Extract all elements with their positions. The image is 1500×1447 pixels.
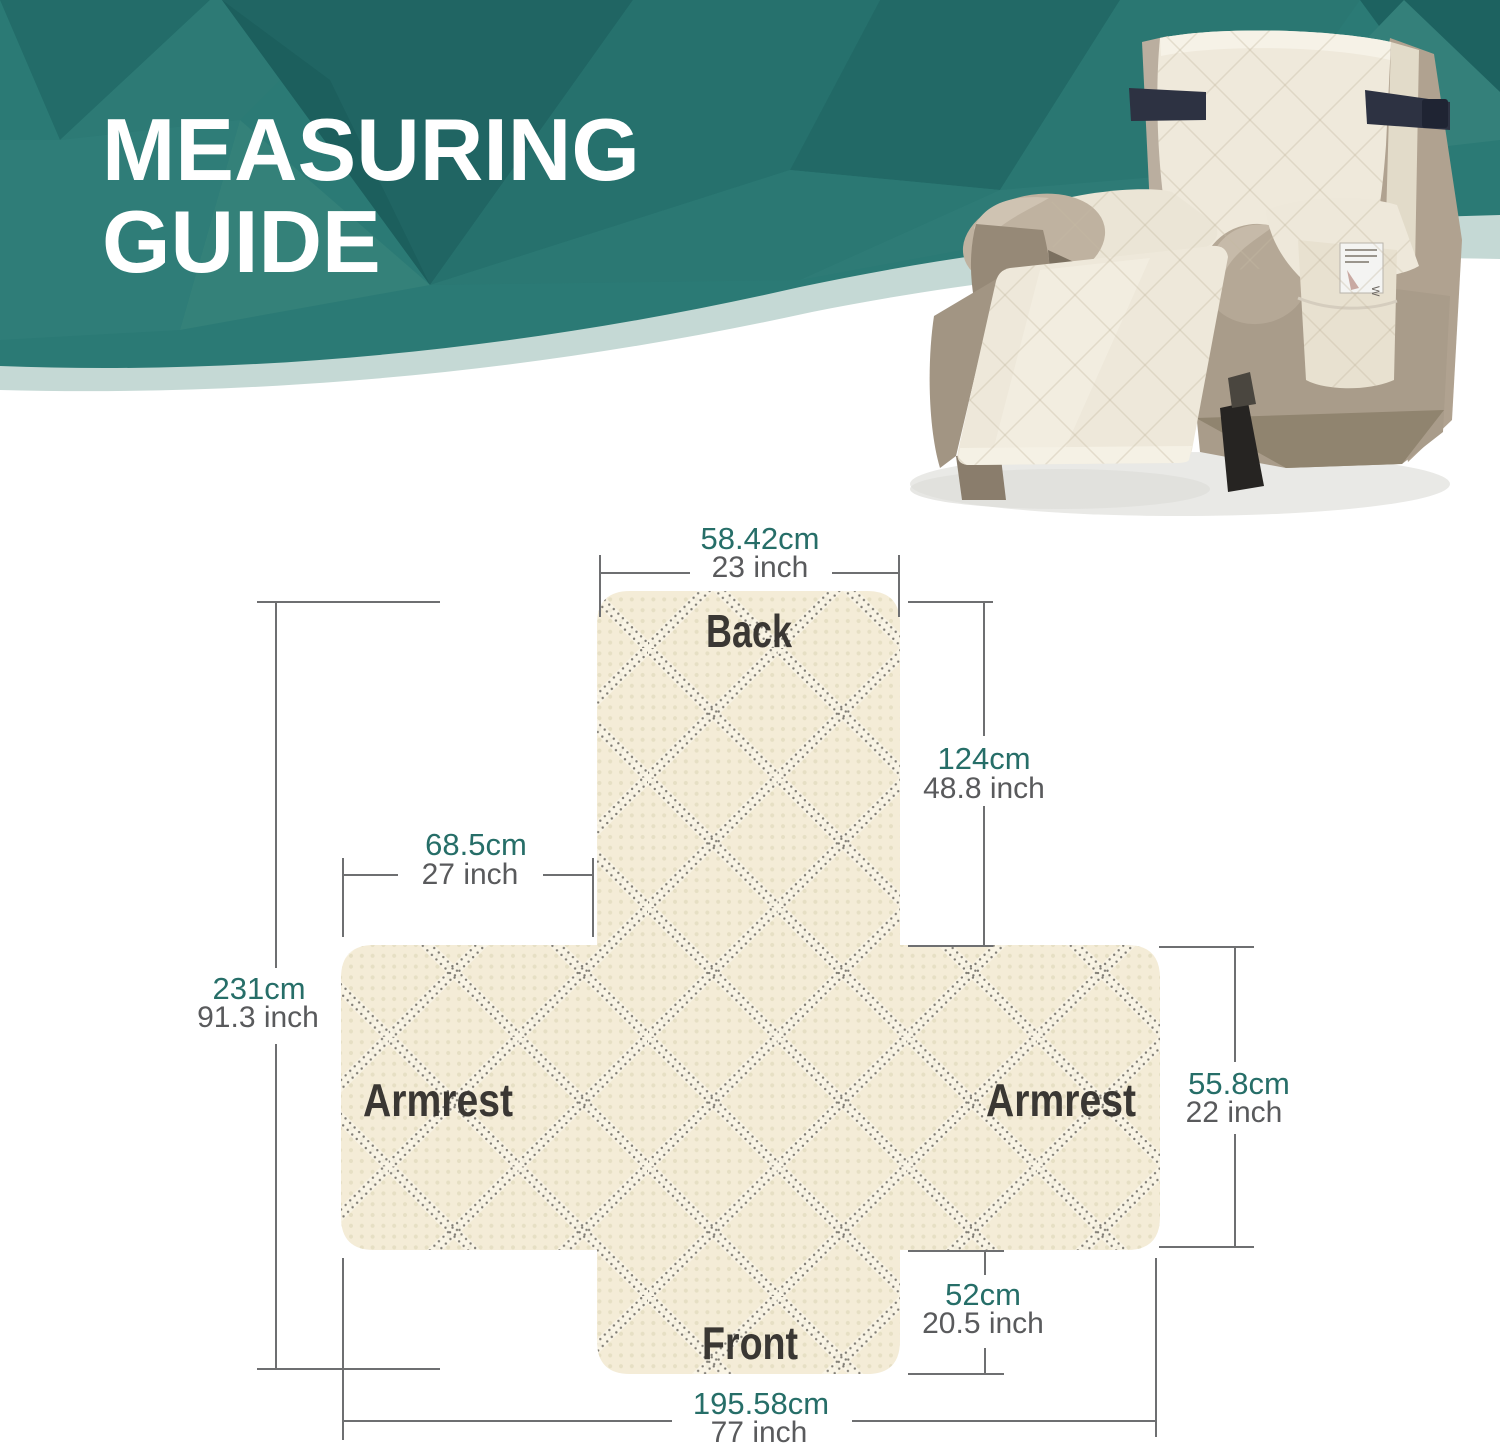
svg-text:77 inch: 77 inch xyxy=(711,1416,808,1447)
svg-text:27 inch: 27 inch xyxy=(422,858,519,891)
svg-text:Front: Front xyxy=(702,1317,798,1369)
svg-text:91.3 inch: 91.3 inch xyxy=(197,1001,319,1034)
svg-text:W: W xyxy=(1369,286,1381,297)
svg-text:GUIDE: GUIDE xyxy=(102,192,381,291)
svg-text:Back: Back xyxy=(706,605,792,657)
svg-text:MEASURING: MEASURING xyxy=(102,100,640,199)
svg-text:22 inch: 22 inch xyxy=(1186,1096,1283,1129)
svg-text:68.5cm: 68.5cm xyxy=(425,827,527,862)
svg-text:Armrest: Armrest xyxy=(986,1074,1136,1126)
svg-text:20.5 inch: 20.5 inch xyxy=(922,1307,1044,1340)
svg-text:124cm: 124cm xyxy=(937,741,1030,776)
svg-text:Armrest: Armrest xyxy=(363,1074,513,1126)
svg-text:48.8 inch: 48.8 inch xyxy=(923,772,1045,805)
svg-text:23 inch: 23 inch xyxy=(712,551,809,584)
